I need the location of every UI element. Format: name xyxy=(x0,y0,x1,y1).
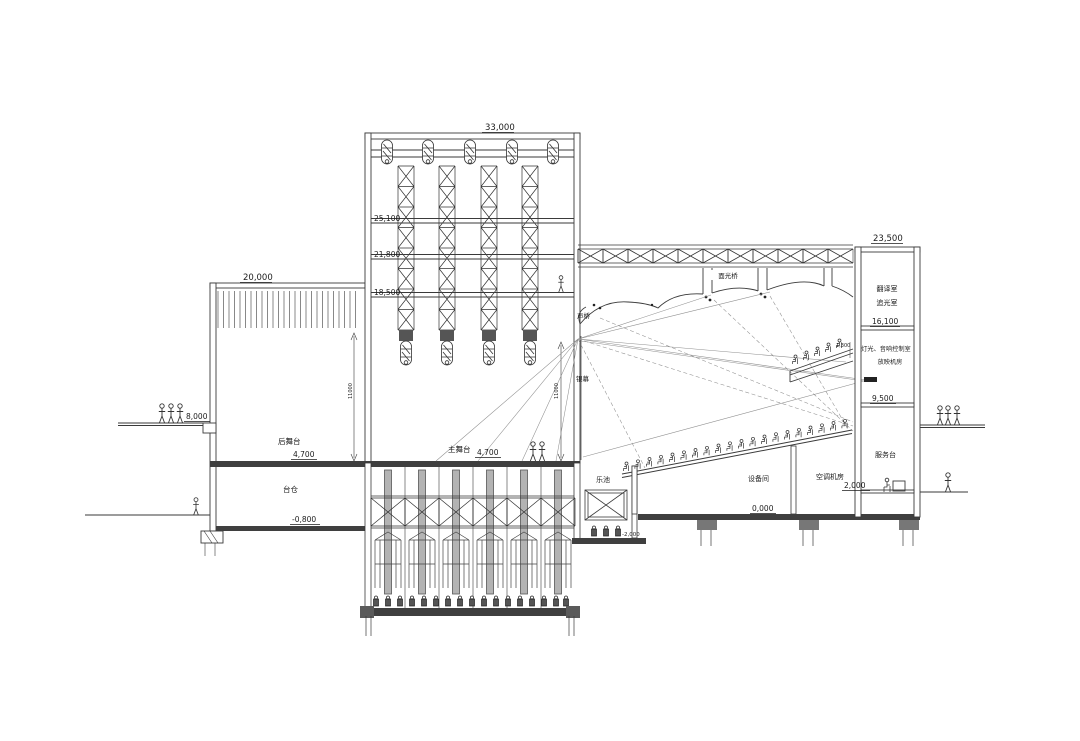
labels: 33,000 20,000 23,500 25,100 21,800 18,50… xyxy=(184,123,911,538)
level-m0800: -0,800 xyxy=(292,515,316,524)
room-control: 灯光、音响控制室 xyxy=(861,345,911,353)
dim-33000: 33,000 xyxy=(485,123,515,133)
understage xyxy=(360,463,580,636)
fly-tower xyxy=(365,133,580,463)
dim-11000-right: 11000 xyxy=(554,383,560,399)
level-8000: 8,000 xyxy=(186,412,208,421)
auditorium xyxy=(436,245,877,514)
level-2000: 2,000 xyxy=(844,481,866,490)
label-front-light-bridge: 面光桥 xyxy=(718,271,738,280)
stage-floor-slab xyxy=(210,461,580,467)
level-21800: 21,800 xyxy=(374,250,400,259)
gallery-person-figure xyxy=(558,276,563,292)
room-rear-stage: 后舞台 xyxy=(278,436,301,446)
room-pit: 乐池 xyxy=(596,475,610,484)
label-screen: 银幕 xyxy=(576,374,590,383)
rear-stage-block xyxy=(201,283,365,556)
ground-lines xyxy=(85,423,985,515)
dim-1300: 1,300 xyxy=(836,343,850,349)
room-trap: 台仓 xyxy=(283,484,298,494)
level-0000: 0,000 xyxy=(752,504,774,513)
drawing-svg: 33,000 20,000 23,500 25,100 21,800 18,50… xyxy=(0,0,1080,741)
dim-11000-left: 11000 xyxy=(348,383,354,399)
section-drawing: 33,000 20,000 23,500 25,100 21,800 18,50… xyxy=(0,0,1080,741)
level-4700-rear: 4,700 xyxy=(293,450,315,459)
room-main-stage: 主舞台 xyxy=(448,444,471,454)
room-equipment: 设备间 xyxy=(748,474,769,483)
level-m2000: -2,000 xyxy=(622,532,640,538)
room-projection: 放映机房 xyxy=(878,358,903,366)
level-16100: 16,100 xyxy=(872,317,898,326)
level-25100: 25,100 xyxy=(374,214,400,223)
dim-20000: 20,000 xyxy=(243,273,273,283)
level-18500: 18,500 xyxy=(374,288,400,297)
label-sound-bridge: 声桥 xyxy=(577,311,591,320)
sight-lines xyxy=(436,292,866,468)
balcony-seating xyxy=(792,339,841,364)
level-9500: 9,500 xyxy=(872,394,894,403)
room-translation: 翻译室 xyxy=(877,284,898,293)
room-service: 服务台 xyxy=(875,450,896,459)
room-hvac: 空调机房 xyxy=(816,472,844,481)
projector-box xyxy=(864,377,877,382)
dim-23500: 23,500 xyxy=(873,234,903,244)
stalls-seating xyxy=(623,419,847,471)
level-4700-main: 4,700 xyxy=(477,448,499,457)
house-ground xyxy=(638,514,920,546)
ceiling-light-fixtures xyxy=(593,293,767,310)
room-followspot: 追光室 xyxy=(877,298,898,307)
